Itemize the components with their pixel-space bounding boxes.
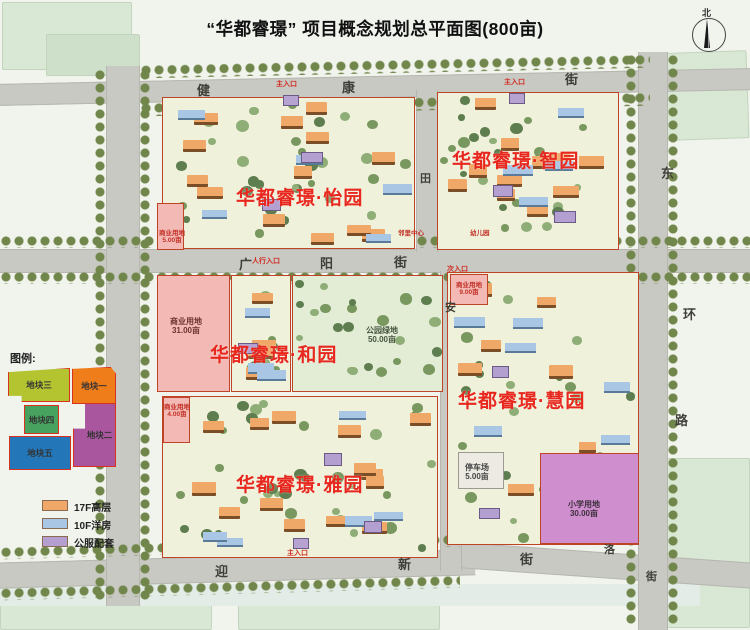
parcel-name: 商业用地 [170,317,202,326]
tree [458,114,465,120]
building-flats [519,197,548,207]
building-flats [366,234,390,243]
site-plan-map: “华都睿璟” 项目概念规划总平面图(800亩) 北 健 康 街 广 阳 街 迎 … [0,0,750,630]
tree [176,491,185,499]
tree [572,336,582,345]
building-highrise [366,476,384,489]
tree [501,224,509,231]
tree [400,159,411,169]
tree [236,120,249,132]
legend-label-flats: 10F洋房 [74,517,111,532]
building-flats [203,532,227,541]
district-block-yiyuan [162,97,415,249]
parcel-name: 商业用地 [456,282,482,289]
tree [240,496,248,503]
building-flats [374,512,403,521]
tree [314,117,325,127]
school-parcel [540,453,639,544]
legend-plot-label: 地块一 [81,380,107,392]
facility-name: 邻里中心 [398,230,424,237]
legend-plot-label: 地块四 [29,414,55,426]
parcel-label-commercial-5: 商业用地 5.00亩 [159,230,185,244]
building-highrise [508,484,533,496]
building-public [554,211,576,223]
building-flats [245,308,270,318]
building-public [301,152,324,164]
parcel-label-commercial-4: 商业用地 4.00亩 [164,404,190,418]
parcel-area: 9.00亩 [456,289,482,296]
street-donghuan-char: 环 [683,304,696,323]
facility-label-neighborhood-center: 邻里中心 [398,230,424,237]
street-yingxin-char: 街 [520,549,533,568]
legend-plot-4: 地块四 [24,405,59,434]
tree [343,322,354,332]
building-public [324,453,343,466]
building-highrise [203,421,224,433]
tree [367,211,377,220]
parcel-area: 5.00亩 [465,472,489,481]
parcel-name: 小学用地 [568,500,600,509]
parcel-area: 5.00亩 [159,237,185,244]
building-highrise [458,363,482,376]
gate-structure [293,538,309,549]
district-label-yayuan: 华都睿璟·雅园 [236,470,363,497]
building-highrise [475,98,496,110]
tree [176,161,187,171]
tree [461,332,472,342]
tree [249,107,259,116]
building-flats [178,110,205,120]
street-jiankang-char: 健 [197,80,210,99]
building-public [364,521,382,532]
legend-plot-2: 地块二 [73,403,116,467]
tree [377,315,390,327]
street-jiankang-char: 街 [565,69,578,88]
tree [418,544,426,552]
tree [524,117,532,124]
tree [291,137,301,146]
legend-plot-5: 地块五 [9,436,71,470]
district-label-huiyuan: 华都睿璟·慧园 [458,386,585,413]
street-bottom-right-char: 洛 [604,541,615,557]
parcel-label-commercial-9: 商业用地 9.00亩 [456,282,482,296]
legend-swatch-public [42,536,68,547]
street-inner-mid-char: 安 [445,299,456,315]
tree [458,442,467,450]
entrance-label-secondary: 次入口 [447,264,468,274]
parcel-area: 30.00亩 [568,509,600,518]
building-highrise [294,166,312,179]
building-flats [604,382,630,392]
building-flats [454,317,485,328]
district-label-zhiyuan: 华都睿璟·智园 [452,146,579,173]
tree [332,508,340,516]
building-highrise [311,233,334,244]
tree [421,296,432,306]
building-flats [505,343,536,353]
plot-legend-title: 图例: [10,350,36,366]
tree [237,401,249,411]
tree [521,222,533,233]
tree [299,421,310,431]
building-highrise [448,179,467,191]
building-highrise [549,365,573,379]
tree [320,304,331,314]
entrance-label-main: 主入口 [287,548,308,558]
building-highrise [338,425,360,438]
tree [432,347,442,356]
compass-icon: 北 [688,6,732,56]
entrance-label-main: 主入口 [276,79,297,89]
building-highrise [579,156,605,169]
parcel-area: 31.00亩 [170,326,202,335]
street-bottom-right-char: 街 [646,568,657,584]
page-title: “华都睿璟” 项目概念规划总平面图(800亩) [206,16,543,41]
legend-plot-label: 地块二 [87,429,113,441]
facility-label-kindergarten: 幼儿园 [470,230,490,237]
building-flats [513,318,543,329]
parcel-area: 4.00亩 [164,411,190,418]
tree [518,533,529,542]
street-donghuan-char: 东 [661,163,674,182]
gate-structure [509,93,525,104]
building-highrise [192,482,216,495]
tree [412,403,423,413]
tree [510,518,517,524]
tree [440,157,448,164]
tree [383,491,391,498]
building-highrise [183,140,206,152]
tree [320,283,328,290]
tree [429,317,441,328]
entrance-label-main: 主入口 [504,77,525,87]
building-flats [202,210,226,219]
street-guangyang-char: 阳 [320,253,333,272]
tree [510,123,522,134]
building-highrise [372,152,396,165]
building-highrise [537,297,556,308]
building-flats [474,426,502,437]
building-highrise [272,411,296,423]
tree [503,295,513,304]
building-highrise [187,175,207,187]
tree [183,216,190,222]
tree [469,133,479,142]
parcel-label-school-30: 小学用地 30.00亩 [568,500,600,518]
district-label-yiyuan: 华都睿璟·怡园 [236,183,363,210]
plot-legend: 图例: 地块三 地块一 地块四 地块二 地块五 [6,348,118,474]
building-highrise [197,187,223,199]
tree [489,138,496,145]
legend-plot-3: 地块三 [8,368,70,402]
compass-needle-half [708,19,710,48]
parcel-name: 停车场 [465,463,489,472]
tree [296,301,304,308]
tree [460,96,469,104]
tree [423,364,435,375]
tree [349,299,356,306]
parcel-area: 50.00亩 [366,335,398,344]
building-highrise [284,519,305,532]
parcel-label-commercial-31: 商业用地 31.00亩 [170,317,202,335]
tree [255,229,264,237]
tree [180,525,189,533]
building-highrise [306,132,329,144]
building-highrise [306,102,327,114]
tree [499,204,507,211]
tree [393,358,401,365]
legend-label-public: 公服配套 [74,535,114,550]
parcel-name: 商业用地 [164,404,190,411]
legend-plot-label: 地块五 [27,447,53,459]
tree [626,392,635,400]
street-inner-top-char: 田 [420,170,431,186]
legend-label-highrise: 17F高层 [74,499,111,514]
building-highrise [410,413,431,426]
building-public [492,366,509,378]
parcel-name: 商业用地 [159,230,185,237]
entrance-label-pedestrian: 人行入口 [252,256,280,266]
building-public [479,508,501,519]
tree [427,460,436,468]
parcel-name: 公园绿地 [366,326,398,335]
legend-plot-1: 地块一 [72,367,116,404]
building-highrise [281,116,303,129]
tree [579,124,588,132]
building-highrise [250,418,270,430]
tree [237,156,249,167]
street-guangyang-char: 广 [239,254,252,273]
tree [333,323,343,332]
building-highrise [481,340,500,352]
building-highrise [252,293,273,305]
street-donghuan-char: 路 [675,410,688,429]
tree [215,464,224,472]
building-flats [339,411,366,420]
tree [310,309,318,316]
tree [367,120,377,129]
street-jiankang-char: 康 [342,77,355,96]
facility-name: 幼儿园 [470,230,490,237]
building-highrise [553,186,579,198]
building-flats [383,184,412,195]
street-guangyang-char: 街 [394,252,407,271]
tree [350,529,359,537]
building-legend: 17F高层 10F洋房 公服配套 [40,498,150,560]
tree [208,138,216,145]
legend-swatch-highrise [42,500,68,511]
legend-swatch-flats [42,518,68,529]
building-highrise [263,214,285,227]
tree [542,222,552,231]
district-block-heyuan [231,275,291,392]
tree [285,508,297,518]
tree [364,363,373,371]
building-highrise [219,507,240,519]
building-highrise [579,442,596,453]
tree [480,127,491,137]
building-flats [601,435,630,445]
tree [370,429,382,440]
building-flats [558,108,584,118]
tree [295,280,304,288]
tree [348,367,357,375]
gate-structure [283,95,299,106]
road-donghuan-road [638,52,668,630]
building-flats [257,370,285,381]
parcel-label-parking-5: 停车场 5.00亩 [465,463,489,481]
building-highrise [260,498,282,511]
tree [465,492,477,503]
district-label-heyuan: 华都睿璟·和园 [210,340,337,367]
tree [400,293,413,305]
parcel-label-park-50: 公园绿地 50.00亩 [366,326,398,344]
tree [376,367,387,377]
tree-belt [667,55,679,625]
building-public [493,185,513,198]
tree [340,112,350,121]
street-yingxin-char: 新 [398,554,411,573]
street-yingxin-char: 迎 [215,561,228,580]
tree [368,174,379,183]
legend-plot-label: 地块三 [26,379,52,391]
